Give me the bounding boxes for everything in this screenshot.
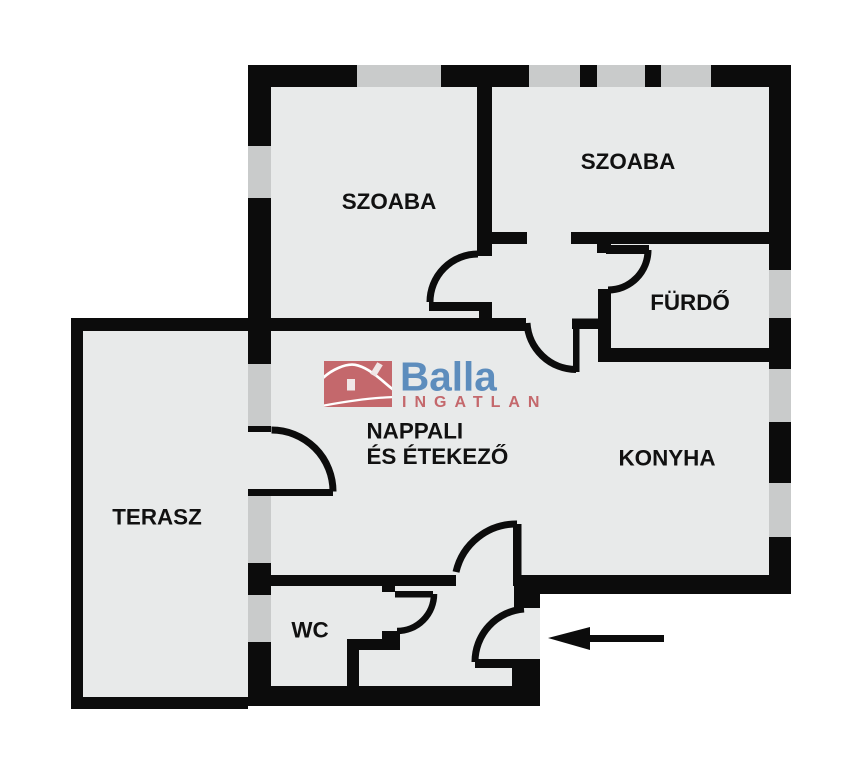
svg-text:Balla: Balla	[400, 354, 497, 400]
svg-text:KONYHA: KONYHA	[618, 446, 715, 471]
svg-text:ÉS ÉTEKEZŐ: ÉS ÉTEKEZŐ	[367, 444, 509, 469]
svg-text:SZOABA: SZOABA	[342, 189, 437, 214]
svg-text:TERASZ: TERASZ	[112, 504, 202, 529]
svg-text:SZOABA: SZOABA	[581, 149, 676, 174]
svg-text:INGATLAN: INGATLAN	[402, 394, 547, 411]
svg-text:FÜRDŐ: FÜRDŐ	[650, 290, 730, 315]
svg-text:NAPPALI: NAPPALI	[367, 419, 464, 444]
svg-text:WC: WC	[291, 617, 328, 642]
